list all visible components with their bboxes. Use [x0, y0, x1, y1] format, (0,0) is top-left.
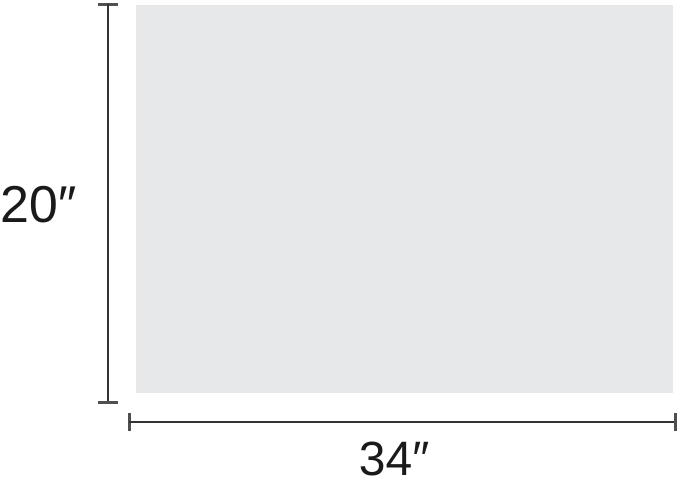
- height-dimension-line: [107, 4, 109, 403]
- width-dimension-label: 34″: [329, 434, 459, 483]
- product-surface-rectangle: [136, 5, 673, 393]
- width-dimension-line: [129, 421, 676, 423]
- height-dimension-label: 20″: [0, 176, 80, 234]
- diagram-canvas: 20″ 34″: [0, 0, 679, 483]
- width-dimension-right-tick: [674, 413, 677, 431]
- height-dimension-bottom-tick: [98, 401, 118, 404]
